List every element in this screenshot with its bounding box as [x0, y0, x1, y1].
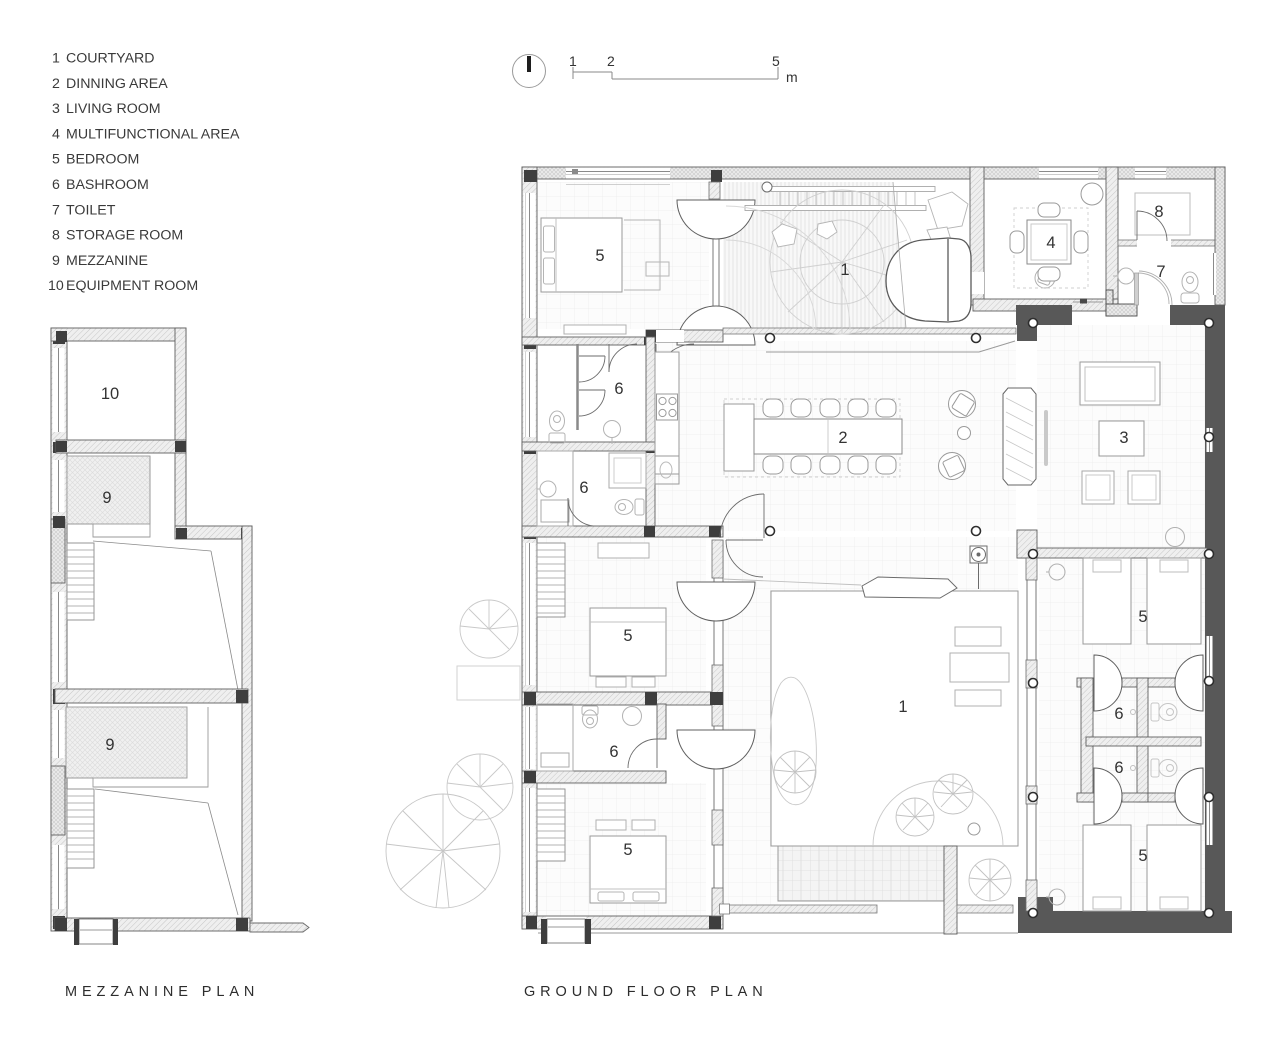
svg-text:9: 9 — [105, 736, 114, 754]
svg-text:4: 4 — [1046, 234, 1055, 252]
svg-text:1: 1 — [898, 698, 907, 716]
svg-text:9: 9 — [52, 253, 60, 269]
svg-text:BEDROOM: BEDROOM — [66, 152, 139, 168]
svg-text:1: 1 — [840, 261, 849, 279]
svg-text:1: 1 — [52, 51, 60, 67]
svg-text:EQUIPMENT ROOM: EQUIPMENT ROOM — [66, 278, 198, 294]
svg-text:MULTIFUNCTIONAL AREA: MULTIFUNCTIONAL AREA — [66, 126, 240, 142]
svg-text:6: 6 — [1114, 759, 1123, 777]
svg-text:5: 5 — [772, 53, 780, 69]
svg-text:5: 5 — [52, 152, 60, 168]
svg-text:LIVING ROOM: LIVING ROOM — [66, 101, 161, 117]
svg-text:9: 9 — [102, 489, 111, 507]
svg-text:m: m — [786, 69, 798, 85]
svg-text:3: 3 — [52, 101, 60, 117]
svg-text:6: 6 — [614, 380, 623, 398]
svg-text:6: 6 — [609, 743, 618, 761]
svg-text:4: 4 — [52, 126, 60, 142]
svg-text:STORAGE ROOM: STORAGE ROOM — [66, 228, 183, 244]
svg-text:1: 1 — [569, 53, 577, 69]
svg-text:MEZZANINE PLAN: MEZZANINE PLAN — [65, 984, 259, 1000]
svg-text:5: 5 — [1138, 847, 1147, 865]
svg-text:5: 5 — [623, 841, 632, 859]
svg-text:7: 7 — [52, 202, 60, 218]
svg-text:6: 6 — [1114, 705, 1123, 723]
svg-text:5: 5 — [623, 627, 632, 645]
svg-text:10: 10 — [48, 278, 64, 294]
svg-text:6: 6 — [579, 479, 588, 497]
svg-text:7: 7 — [1156, 263, 1165, 281]
svg-text:TOILET: TOILET — [66, 202, 116, 218]
svg-text:8: 8 — [1154, 203, 1163, 221]
svg-text:2: 2 — [52, 76, 60, 92]
svg-text:5: 5 — [1138, 608, 1147, 626]
svg-text:5: 5 — [595, 247, 604, 265]
svg-text:MEZZANINE: MEZZANINE — [66, 253, 148, 269]
svg-text:2: 2 — [838, 429, 847, 447]
svg-text:2: 2 — [607, 53, 615, 69]
svg-text:6: 6 — [52, 177, 60, 193]
svg-text:GROUND FLOOR PLAN: GROUND FLOOR PLAN — [524, 984, 768, 1000]
svg-text:COURTYARD: COURTYARD — [66, 51, 155, 67]
svg-text:3: 3 — [1119, 429, 1128, 447]
svg-text:10: 10 — [101, 385, 119, 403]
svg-text:BASHROOM: BASHROOM — [66, 177, 149, 193]
svg-text:8: 8 — [52, 228, 60, 244]
svg-text:DINNING AREA: DINNING AREA — [66, 76, 168, 92]
